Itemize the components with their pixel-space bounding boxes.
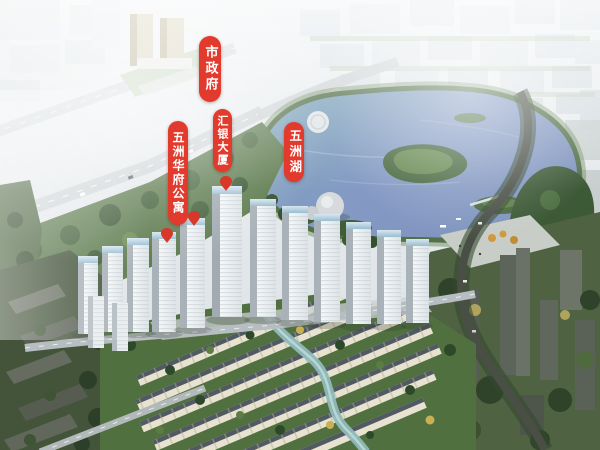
label-wuzhou-lake: 五洲湖	[284, 122, 304, 182]
label-huiyin-tower: 汇银大厦	[213, 109, 232, 172]
map-pin-huiyin-tower	[220, 176, 232, 191]
aerial-view-stage: 市政府 汇银大厦 五洲湖 五洲华府公寓	[0, 0, 600, 450]
label-city-government: 市政府	[199, 36, 221, 102]
map-pin-huafu-1	[188, 211, 200, 226]
scene-art	[0, 0, 600, 450]
map-pin-huafu-2	[161, 228, 173, 243]
label-wuzhou-huafu-apartments: 五洲华府公寓	[168, 121, 188, 225]
